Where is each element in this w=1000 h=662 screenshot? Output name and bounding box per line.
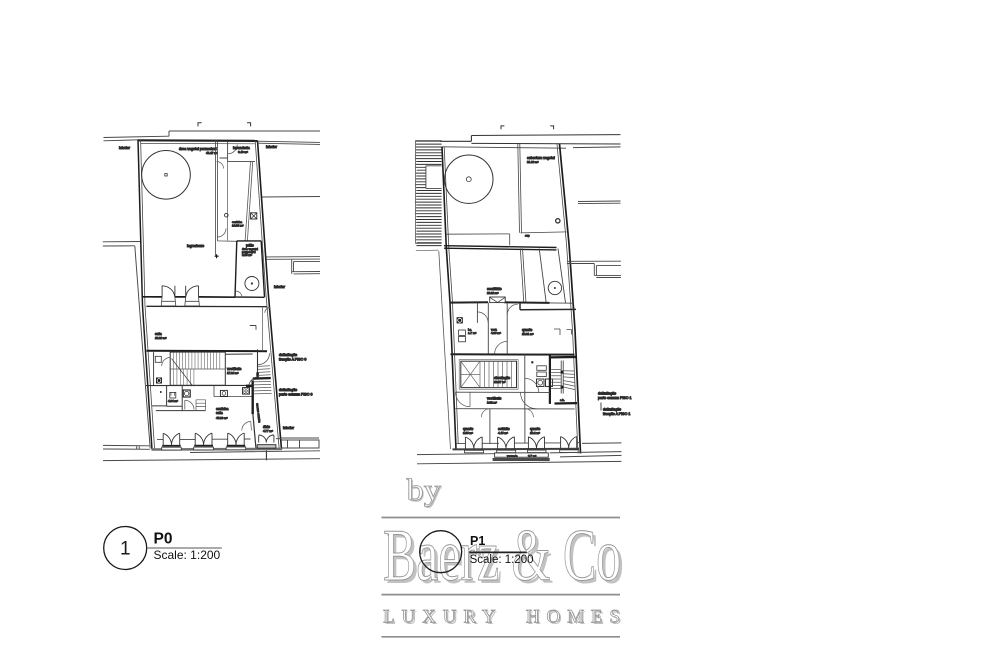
svg-text:16.01 m²: 16.01 m² (522, 332, 533, 336)
svg-text:9.05 m²: 9.05 m² (463, 431, 473, 435)
svg-text:c.b.: c.b. (560, 398, 565, 402)
svg-text:delimitação: delimitação (598, 392, 616, 396)
svg-text:21.20 m²: 21.20 m² (527, 160, 538, 164)
svg-text:1.7 m²: 1.7 m² (468, 331, 476, 335)
svg-text:P0: P0 (154, 531, 173, 548)
svg-text:interior: interior (274, 285, 286, 289)
svg-text:14.30 m²: 14.30 m² (232, 224, 243, 228)
svg-text:18.20 m²: 18.20 m² (155, 336, 166, 340)
svg-text:4.04 m²: 4.04 m² (168, 399, 178, 403)
svg-text:varanda: varanda (507, 454, 518, 458)
svg-text:17.24 m²: 17.24 m² (227, 371, 238, 375)
svg-text:fracção A PISO 0: fracção A PISO 0 (279, 358, 306, 362)
svg-text:delimitação: delimitação (279, 388, 297, 392)
svg-text:13.37 m²: 13.37 m² (494, 380, 505, 384)
svg-text:acesso comum: acesso comum (255, 403, 261, 423)
svg-text:20.32 m²: 20.32 m² (487, 291, 498, 295)
svg-text:fracção A PISO 1: fracção A PISO 1 (603, 412, 630, 416)
svg-text:2.82 m²: 2.82 m² (487, 401, 497, 405)
svg-text:1: 1 (120, 539, 131, 560)
svg-text:4.05 m²: 4.05 m² (491, 331, 501, 335)
svg-text:8.05 m²: 8.05 m² (242, 253, 252, 257)
svg-text:sala: sala (216, 411, 223, 415)
svg-text:parte comum PISO 1: parte comum PISO 1 (598, 396, 632, 400)
svg-text:interior: interior (119, 146, 131, 150)
svg-text:4.77 m²: 4.77 m² (263, 429, 273, 433)
svg-text:4.45 m²: 4.45 m² (498, 431, 508, 435)
svg-text:Scale: 1:200: Scale: 1:200 (154, 548, 221, 562)
svg-text:sup: sup (525, 234, 530, 238)
svg-text:6.40 m²: 6.40 m² (238, 150, 248, 154)
svg-text:delimitação: delimitação (279, 353, 297, 357)
svg-text:Scale: 1:200: Scale: 1:200 (470, 554, 534, 566)
svg-text:2.7 m²: 2.7 m² (528, 454, 536, 458)
svg-text:10.2 m²: 10.2 m² (530, 431, 540, 435)
svg-text:interior: interior (266, 145, 278, 149)
svg-text:delimitação: delimitação (603, 408, 621, 412)
svg-text:45.30 m²: 45.30 m² (216, 416, 227, 420)
svg-text:parte comum PISO 0: parte comum PISO 0 (279, 393, 313, 397)
svg-text:P1: P1 (470, 534, 485, 548)
svg-text:logradouro: logradouro (187, 244, 204, 248)
svg-text:by: by (407, 472, 442, 507)
svg-text:interior: interior (283, 426, 295, 430)
